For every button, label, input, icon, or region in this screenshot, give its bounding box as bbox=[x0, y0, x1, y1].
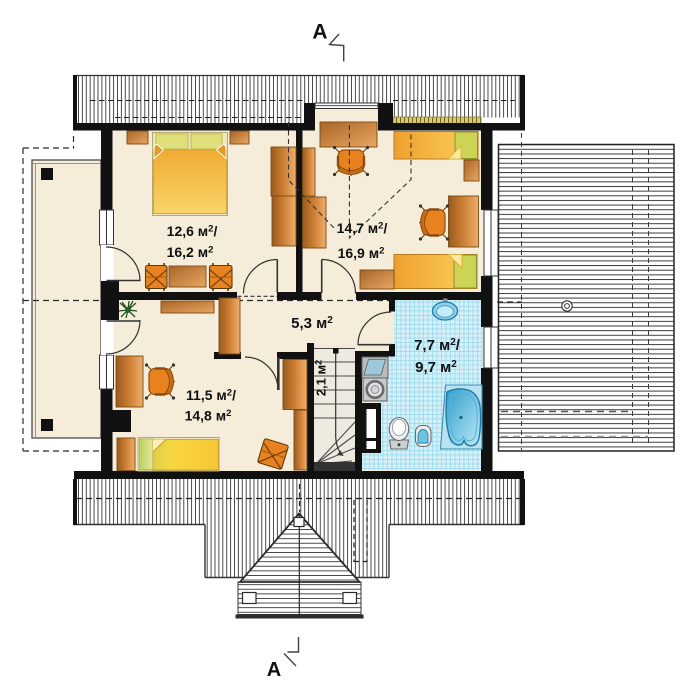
svg-text:14,8 м2: 14,8 м2 bbox=[185, 408, 232, 424]
svg-text:A: A bbox=[267, 659, 281, 681]
svg-text:5,3 м2: 5,3 м2 bbox=[291, 315, 333, 332]
svg-text:9,7 м2: 9,7 м2 bbox=[415, 359, 457, 376]
svg-text:16,2 м2: 16,2 м2 bbox=[167, 244, 214, 260]
svg-text:A: A bbox=[312, 21, 327, 44]
svg-text:16,9 м2: 16,9 м2 bbox=[338, 245, 385, 261]
svg-text:2,1 м2: 2,1 м2 bbox=[314, 360, 329, 396]
